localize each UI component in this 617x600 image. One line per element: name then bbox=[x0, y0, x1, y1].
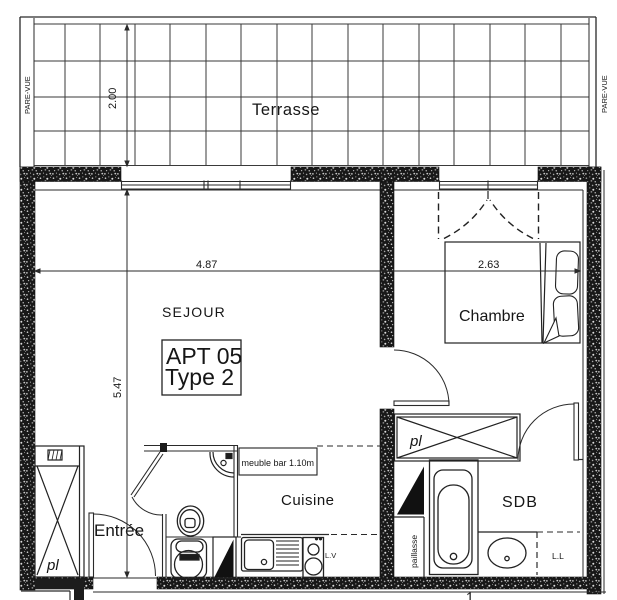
svg-text:SDB: SDB bbox=[502, 494, 538, 511]
svg-text:L.V: L.V bbox=[325, 551, 336, 560]
svg-text:PARE-VUE: PARE-VUE bbox=[23, 76, 32, 114]
svg-text:Entrée: Entrée bbox=[94, 521, 144, 540]
svg-text:pl: pl bbox=[46, 557, 59, 574]
svg-text:2.63: 2.63 bbox=[478, 259, 499, 271]
svg-text:2.00: 2.00 bbox=[107, 88, 119, 109]
svg-text:L.L: L.L bbox=[552, 551, 564, 561]
svg-text:1: 1 bbox=[466, 589, 474, 600]
svg-text:Type 2: Type 2 bbox=[165, 364, 234, 390]
svg-text:5.47: 5.47 bbox=[112, 377, 124, 398]
svg-text:Terrasse: Terrasse bbox=[252, 101, 320, 119]
svg-text:paillasse: paillasse bbox=[409, 535, 419, 568]
svg-text:pl: pl bbox=[409, 433, 422, 450]
svg-text:Cuisine: Cuisine bbox=[281, 492, 335, 509]
svg-text:SEJOUR: SEJOUR bbox=[162, 304, 226, 320]
svg-text:Chambre: Chambre bbox=[459, 308, 525, 325]
svg-text:PARE-VUE: PARE-VUE bbox=[600, 75, 609, 113]
svg-text:4.87: 4.87 bbox=[196, 259, 217, 271]
svg-text:meuble bar 1.10m: meuble bar 1.10m bbox=[242, 458, 315, 468]
